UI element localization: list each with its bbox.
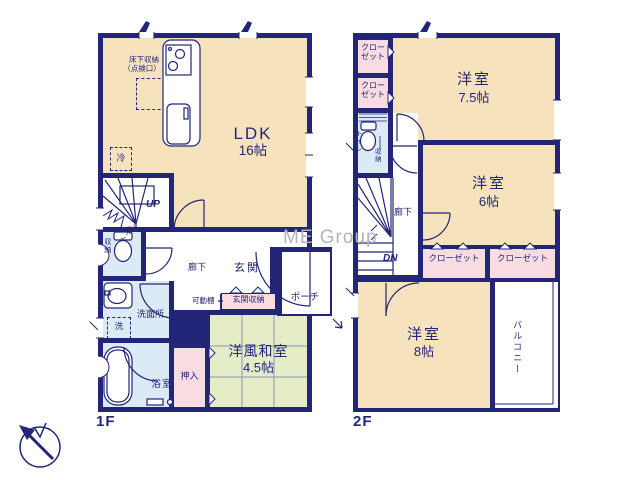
label-bathroom: 浴室 [146,380,178,391]
label-toilet-2f: トイレ [354,130,361,153]
room-label-western-6: 洋室 [423,176,555,193]
underfloor-storage-box [136,78,166,110]
room-size-western-7-5: 7.5帖 [393,91,555,106]
room-size-western-6: 6帖 [423,195,555,210]
room-label-western-7-5: 洋室 [393,72,555,89]
label-entrance-storage: 玄関収納 [221,296,276,305]
room-label-western-japanese: 洋風和室 [210,344,307,360]
room-size-western-japanese: 4.5帖 [210,361,307,376]
label-washer: 洗 [107,322,131,332]
label-closet-2f-b: クローゼット [359,82,387,100]
room-ldk-lower [174,173,307,227]
label-oshiire: 押入 [174,371,205,381]
label-hallway-2f: 廊下 [394,207,412,217]
floorplan-canvas: 1F LDK 16帖 床下収納 （点検口） 冷 UP 収納 トイレ 廊下 玄関 … [0,0,640,480]
label-inspection-port: （点検口） [114,65,170,73]
room-label-western-8: 洋室 [358,327,490,344]
floor-label-1f: 1F [96,414,116,431]
room-label-ldk: LDK [203,124,303,143]
corridor-2f [393,113,418,275]
label-closet-2f-c: クローゼット [423,254,485,264]
label-fridge: 冷 [110,153,132,163]
floor-label-2f: 2F [353,414,373,431]
room-size-ldk: 16帖 [203,143,303,158]
room-size-western-8: 8帖 [358,345,490,360]
label-porch: ポーチ [284,293,326,304]
watermark: ME Group [283,227,378,249]
label-washroom: 洗面所 [137,309,164,319]
label-dn: DN [383,253,397,264]
label-up: UP [146,199,160,210]
label-closet-2f-d: クローゼット [490,254,555,264]
compass-icon [19,423,60,467]
room-toilet-2f [358,113,388,173]
room-bathroom [103,343,169,407]
label-movable-shelf: 可動棚 [192,297,215,305]
label-storage-1f: 収納 [103,238,111,254]
label-hallway-1f: 廊下 [188,262,206,272]
porch [277,247,332,316]
label-closet-2f-a: クローゼット [359,44,387,62]
label-storage-2f: 収納 [373,148,380,163]
balcony [495,282,558,408]
label-entrance: 玄関 [234,262,260,274]
label-balcony: バルコニー [512,320,522,375]
